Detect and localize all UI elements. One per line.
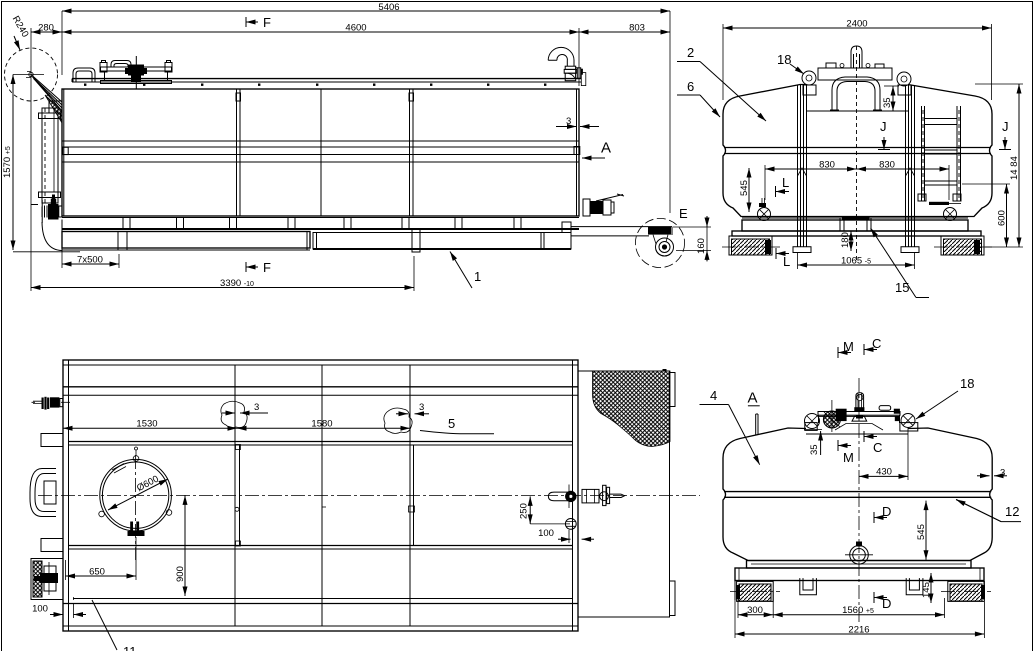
svg-text:600: 600 xyxy=(997,210,1008,226)
svg-text:2216: 2216 xyxy=(848,624,869,635)
svg-text:L: L xyxy=(782,175,789,190)
svg-text:803: 803 xyxy=(629,23,645,34)
svg-text:830: 830 xyxy=(819,159,835,170)
svg-text:M: M xyxy=(843,450,854,465)
svg-text:F: F xyxy=(263,15,271,30)
svg-text:14 84: 14 84 xyxy=(1009,156,1020,180)
svg-text:3: 3 xyxy=(419,402,424,413)
svg-text:300: 300 xyxy=(747,605,763,616)
svg-text:1580: 1580 xyxy=(311,419,332,430)
svg-text:11: 11 xyxy=(123,644,137,651)
svg-text:C: C xyxy=(872,336,881,351)
svg-text:900: 900 xyxy=(175,566,186,582)
svg-text:650: 650 xyxy=(89,566,105,577)
svg-text:15: 15 xyxy=(895,280,909,295)
svg-text:L: L xyxy=(783,254,790,269)
svg-text:100: 100 xyxy=(32,604,48,615)
svg-text:160: 160 xyxy=(696,238,707,254)
svg-text:145: 145 xyxy=(921,582,932,598)
svg-text:4600: 4600 xyxy=(345,23,366,34)
svg-text:18: 18 xyxy=(777,52,791,67)
svg-text:100: 100 xyxy=(538,528,554,539)
svg-text:6: 6 xyxy=(687,79,694,94)
svg-text:280: 280 xyxy=(38,23,54,34)
svg-text:2400: 2400 xyxy=(846,19,867,30)
svg-text:5406: 5406 xyxy=(378,2,399,13)
svg-text:1530: 1530 xyxy=(136,419,157,430)
svg-text:A: A xyxy=(601,140,611,157)
svg-text:4: 4 xyxy=(710,388,717,403)
svg-text:35: 35 xyxy=(882,97,893,108)
svg-text:250: 250 xyxy=(519,503,530,519)
svg-text:3: 3 xyxy=(566,116,571,127)
svg-text:C: C xyxy=(873,440,882,455)
svg-text:D: D xyxy=(882,596,891,611)
svg-text:430: 430 xyxy=(876,467,892,478)
svg-text:12: 12 xyxy=(1005,504,1019,519)
svg-text:J: J xyxy=(1002,119,1009,134)
svg-text:830: 830 xyxy=(879,159,895,170)
svg-text:A: A xyxy=(748,390,758,407)
svg-text:180: 180 xyxy=(840,232,851,248)
svg-text:3: 3 xyxy=(1000,468,1005,479)
svg-text:E: E xyxy=(679,206,688,221)
svg-text:545: 545 xyxy=(916,524,927,540)
svg-text:18: 18 xyxy=(960,376,974,391)
svg-text:M: M xyxy=(843,339,854,354)
svg-text:5: 5 xyxy=(448,416,455,431)
svg-text:35: 35 xyxy=(809,444,820,455)
svg-text:D: D xyxy=(882,504,891,519)
svg-text:3: 3 xyxy=(254,402,259,413)
svg-text:F: F xyxy=(263,260,271,275)
svg-text:J: J xyxy=(880,119,887,134)
svg-text:545: 545 xyxy=(739,180,750,196)
svg-text:2: 2 xyxy=(687,45,694,60)
svg-text:1: 1 xyxy=(474,269,481,284)
svg-text:7x500: 7x500 xyxy=(77,255,103,266)
